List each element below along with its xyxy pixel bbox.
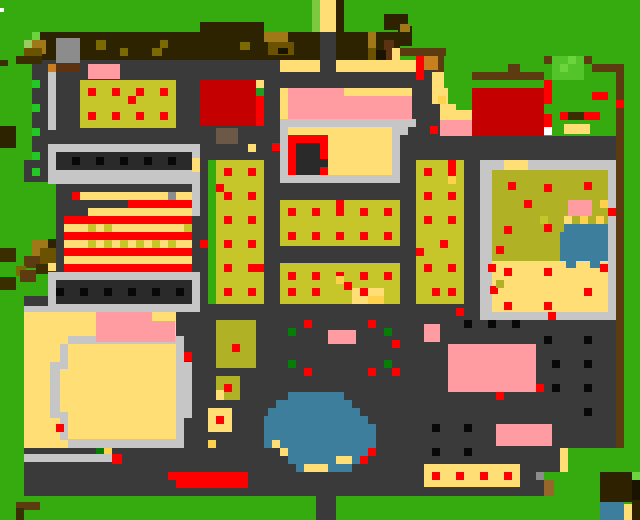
game-map-canvas[interactable] — [0, 0, 640, 520]
game-world-map — [0, 0, 640, 520]
